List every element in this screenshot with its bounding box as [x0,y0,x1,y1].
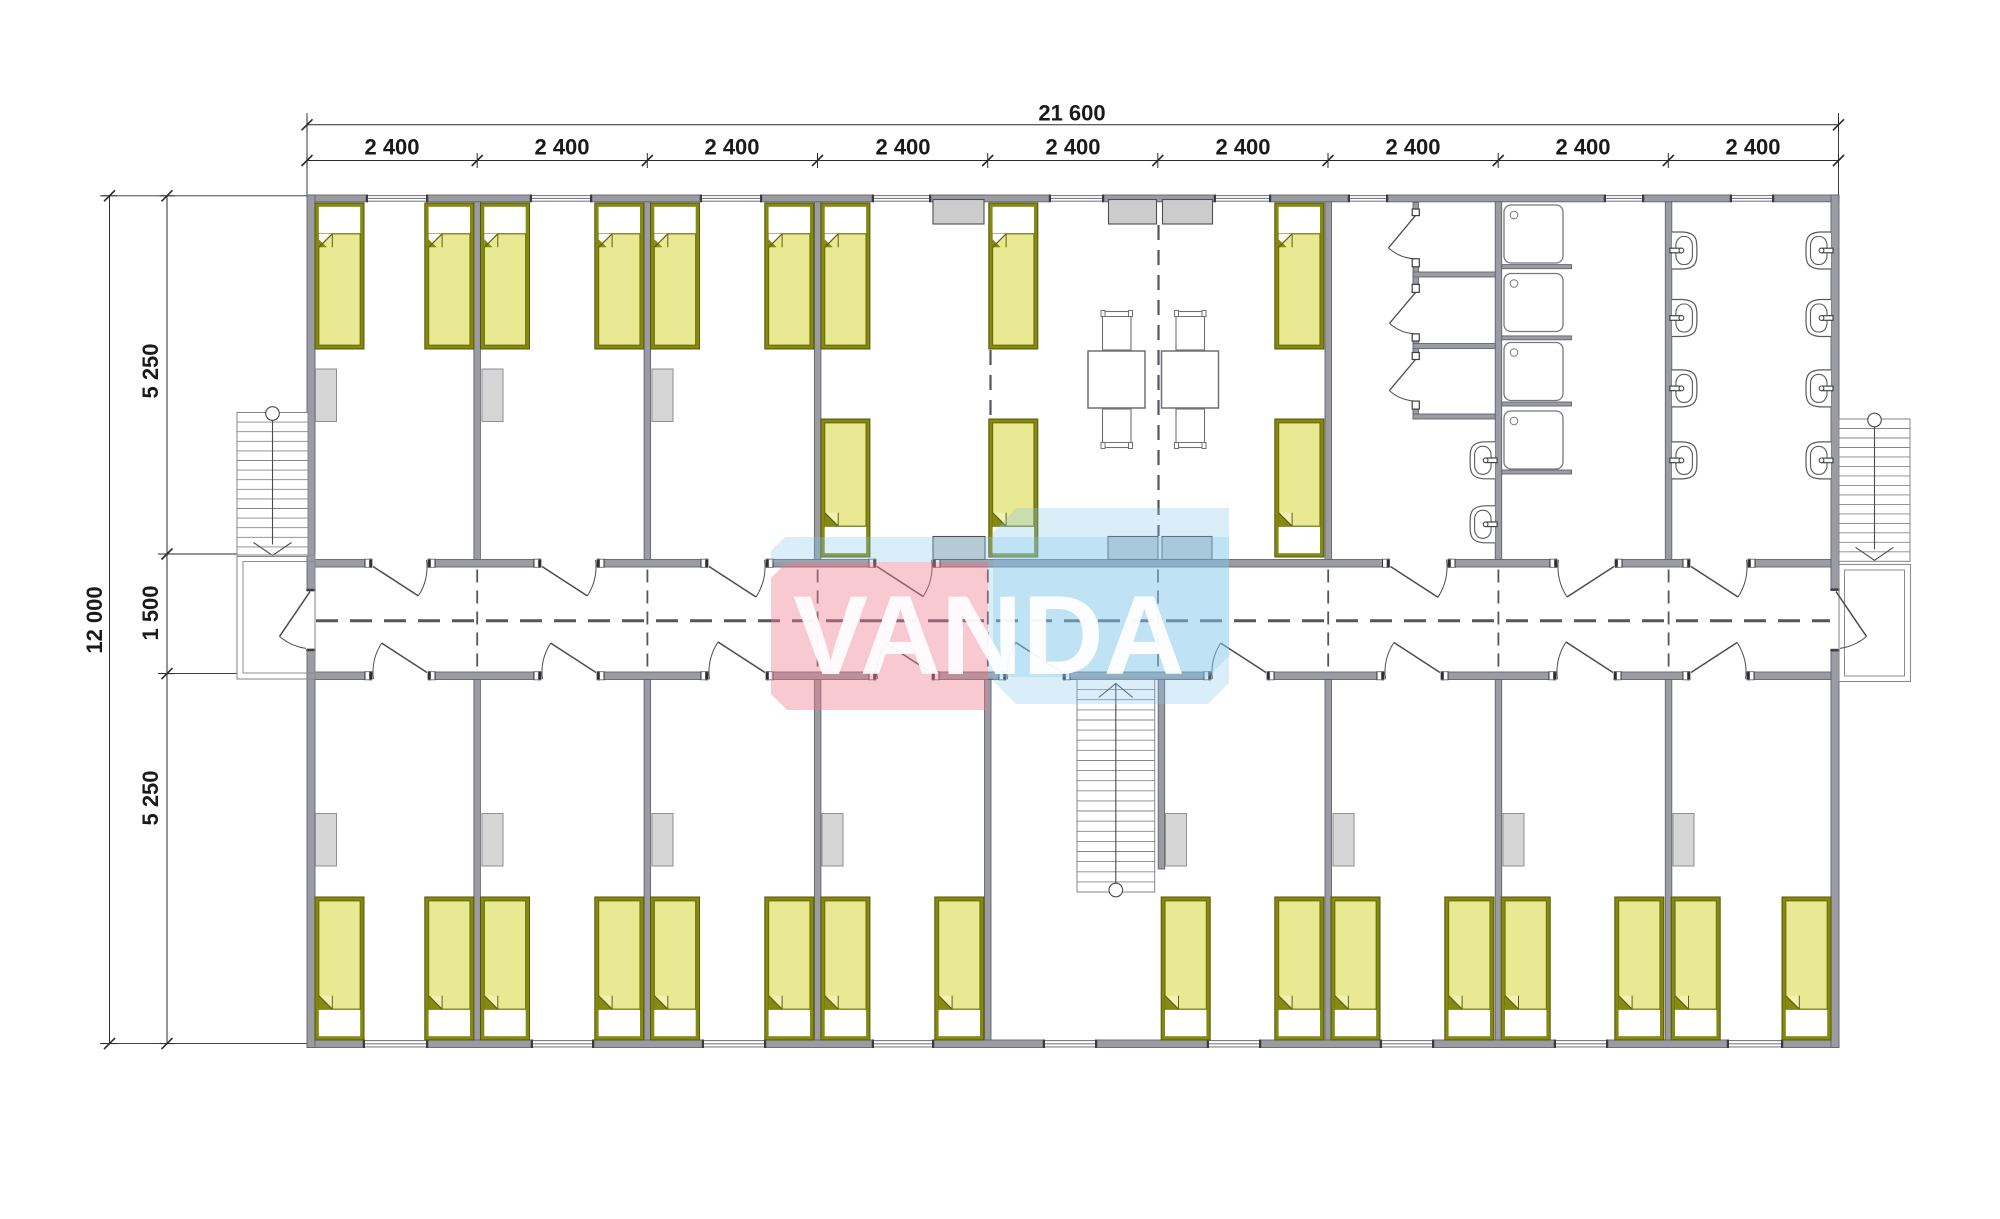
svg-text:2 400: 2 400 [364,135,419,160]
svg-text:12 000: 12 000 [82,586,107,653]
svg-text:VANDA: VANDA [793,573,1185,698]
svg-text:5 250: 5 250 [138,770,163,825]
svg-text:2 400: 2 400 [534,135,589,160]
svg-text:5 250: 5 250 [138,343,163,398]
svg-text:2 400: 2 400 [1555,135,1610,160]
svg-text:21 600: 21 600 [1038,101,1105,126]
svg-text:2 400: 2 400 [1725,135,1780,160]
svg-text:2 400: 2 400 [704,135,759,160]
svg-text:2 400: 2 400 [1385,135,1440,160]
svg-text:1 500: 1 500 [138,585,163,640]
svg-text:2 400: 2 400 [875,135,930,160]
svg-text:2 400: 2 400 [1045,135,1100,160]
svg-text:2 400: 2 400 [1215,135,1270,160]
